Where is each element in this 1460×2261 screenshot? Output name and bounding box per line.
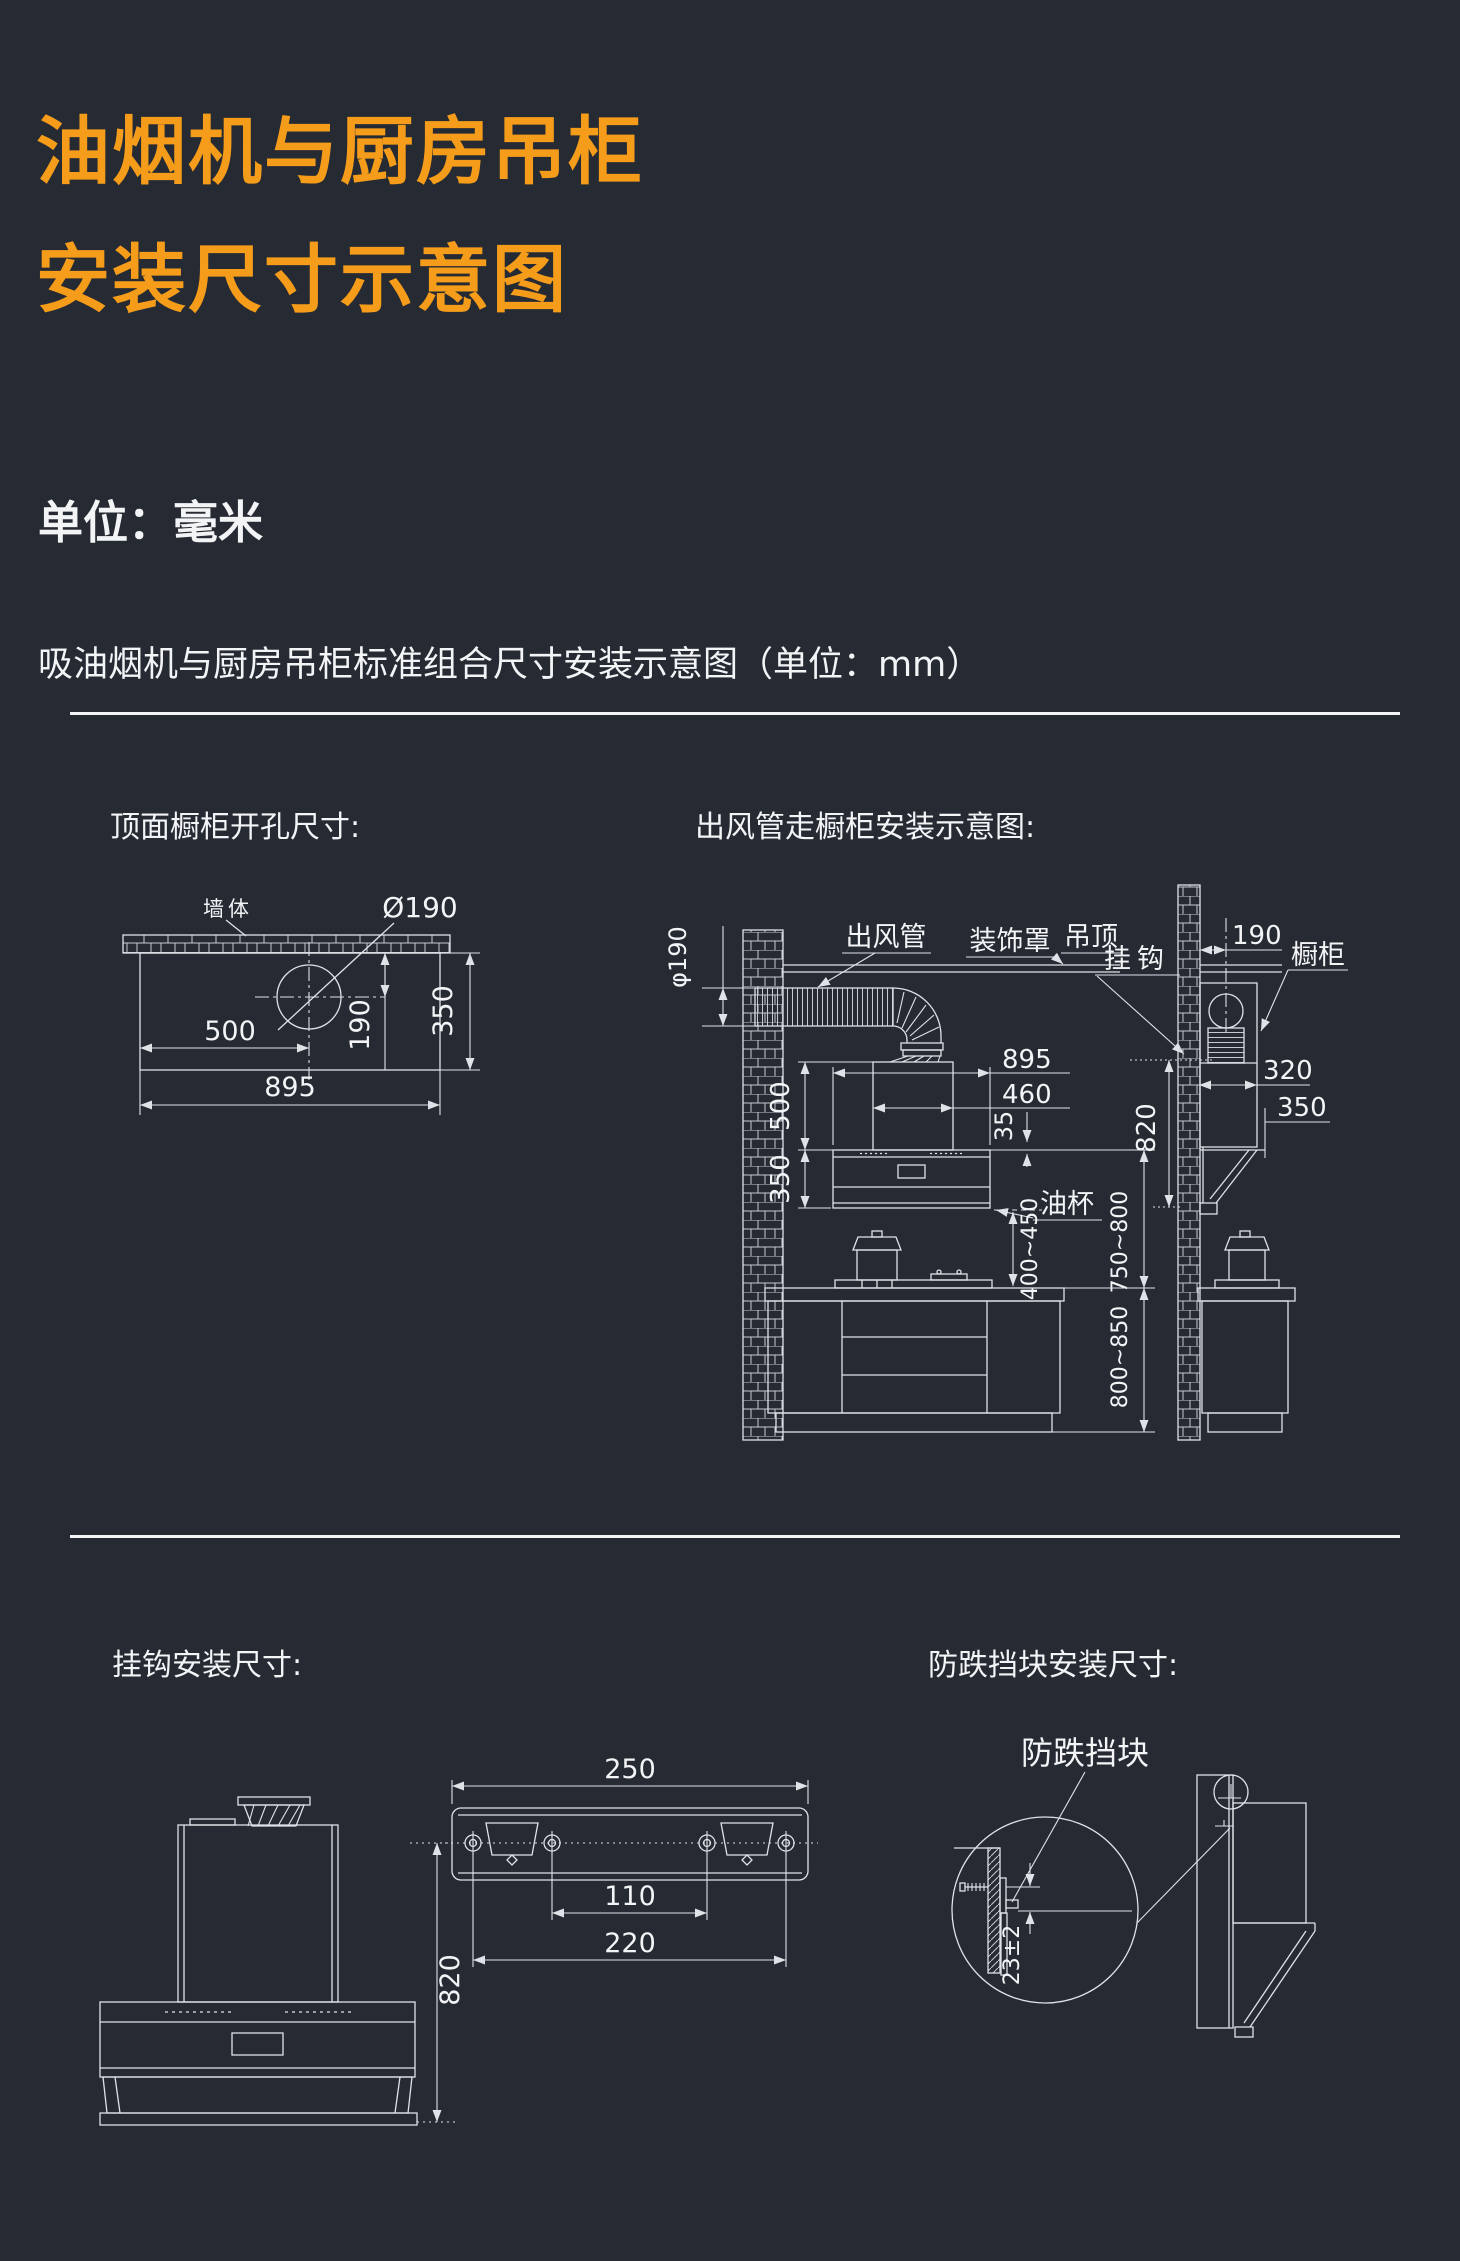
- hook-diagram: 820 250: [60, 1740, 860, 2140]
- label-duct: 出风管: [818, 922, 931, 987]
- dim-counter-height-text: 800~850: [1108, 1306, 1133, 1408]
- corrugation-side: [1208, 1028, 1244, 1063]
- label-cabinet: 橱柜: [1261, 940, 1348, 1031]
- duct-elbow: [890, 988, 943, 1062]
- cover-label-text: 装饰罩: [970, 926, 1051, 957]
- stopper-label-text: 防跌挡块: [1021, 1734, 1149, 1772]
- corrugated-duct: [755, 988, 893, 1026]
- dim-hook-side-text: 820: [1132, 1103, 1162, 1153]
- wall-label-group: 墙体: [203, 897, 253, 936]
- counter-and-cabinet: [765, 1288, 1064, 1432]
- cabinet-top-panel: [140, 942, 440, 1080]
- dim-hook-height: 820: [410, 1843, 466, 2122]
- hood-display-front: [232, 2033, 283, 2055]
- ceiling-lines: [783, 965, 1120, 972]
- ceiling-lines-right: [1200, 965, 1282, 972]
- page-title-line2: 安装尺寸示意图: [36, 220, 568, 327]
- page-title-line1: 油烟机与厨房吊柜: [36, 92, 644, 199]
- cutout-diagram: 墙体 Ø190 500 895 190: [60, 880, 540, 1130]
- label-oilcup: 油杯: [996, 1189, 1102, 1220]
- cabinet-side-box: [1233, 1803, 1306, 1923]
- hole-dia-label: Ø190: [382, 891, 457, 924]
- dim-23-text: 23±2: [1000, 1925, 1025, 1985]
- dim-wall-to-duct: 190: [1200, 918, 1282, 1035]
- dim-500: 500: [140, 1016, 309, 1048]
- dim-hood-depth-text: 350: [1277, 1093, 1327, 1123]
- dim-hoodtop-counter-text: 750~800: [1108, 1191, 1133, 1293]
- hood-display: [898, 1165, 925, 1178]
- stopper-diagram-title: 防跌挡块安装尺寸:: [928, 1640, 1178, 1684]
- counter-and-cabinet-side: [1198, 1288, 1295, 1432]
- dim-110-text: 110: [604, 1881, 656, 1912]
- detail-content: 23±2: [954, 1848, 1132, 1985]
- side-view: [1137, 1775, 1315, 2037]
- dim-895-text: 895: [264, 1072, 316, 1103]
- gas-pot-side: [1215, 1231, 1279, 1288]
- side-cabinet-box: [1200, 983, 1257, 1147]
- brick-wall-right: [1178, 885, 1200, 1440]
- dim-hood-height: 350: [766, 1150, 831, 1208]
- dim-hood-width-text: 895: [1002, 1045, 1052, 1075]
- dim-820-text: 820: [435, 1954, 466, 2006]
- cabinet-label-text: 橱柜: [1291, 940, 1345, 971]
- dim-cab-depth-text: 320: [1263, 1056, 1313, 1086]
- dim-inner-holes: 110: [552, 1853, 707, 1920]
- hook-slot-right: [721, 1823, 773, 1865]
- stopper-diagram: 防跌挡块 23±2: [900, 1730, 1360, 2140]
- dim-stopper-offset: 23±2: [1000, 1863, 1030, 1985]
- dim-350-text: 350: [428, 985, 459, 1037]
- dim-bracket-width: 250: [452, 1754, 808, 1804]
- dim-cover-width: 460: [873, 1080, 1070, 1110]
- dim-hood-to-counter: 400~450: [994, 1198, 1043, 1300]
- dim-counter-height: 800~850: [1052, 1288, 1155, 1432]
- wall-section: [988, 1848, 1000, 1973]
- hood-body: [833, 1150, 990, 1208]
- duct-label-text: 出风管: [846, 922, 927, 953]
- page: 油烟机与厨房吊柜 安装尺寸示意图 单位：毫米 吸油烟机与厨房吊柜标准组合尺寸安装…: [0, 0, 1460, 2261]
- divider-top: [70, 712, 1400, 715]
- hook-diagram-title: 挂钩安装尺寸:: [112, 1640, 302, 1684]
- hood-side-profile: [1200, 1147, 1265, 1214]
- cutout-diagram-title: 顶面橱柜开孔尺寸:: [110, 802, 360, 846]
- screw-holes: [465, 1831, 794, 1855]
- screw: [960, 1883, 988, 1891]
- gas-stove: [835, 1231, 992, 1288]
- hood-front-view: [100, 1797, 417, 2125]
- dim-cover-overlap: 35: [990, 1111, 1070, 1167]
- detail-link-line: [1137, 1828, 1230, 1923]
- dim-500-text: 500: [204, 1016, 256, 1047]
- dim-hood-depth: 350: [1265, 1093, 1330, 1158]
- dim-895: 895: [140, 1070, 440, 1115]
- dim-190: 190: [345, 953, 385, 1070]
- wall-panel: [1197, 1775, 1233, 2028]
- label-hook: 挂钩: [1095, 944, 1184, 1054]
- divider-bottom: [70, 1535, 1400, 1538]
- bracket-detail: [445, 1808, 818, 1880]
- wall-label: 墙体: [203, 897, 253, 921]
- dim-220-text: 220: [604, 1928, 656, 1959]
- dim-cover-height-text: 500: [766, 1081, 796, 1131]
- detail-circle: [952, 1817, 1138, 2003]
- oilcup-label-text: 油杯: [1040, 1189, 1094, 1220]
- dim-hook-height-side: 820: [1132, 1060, 1182, 1207]
- wall-strip: [123, 935, 450, 953]
- dim-wall-duct-text: 190: [1232, 921, 1282, 951]
- duct-diagram: φ190 出风管 装饰罩: [650, 860, 1350, 1450]
- dim-190-text: 190: [345, 999, 376, 1051]
- dim-hood-height-text: 350: [766, 1154, 796, 1204]
- dim-250-text: 250: [604, 1754, 656, 1785]
- section-header: 吸油烟机与厨房吊柜标准组合尺寸安装示意图（单位：mm）: [38, 636, 981, 687]
- dim-overlap-text: 35: [990, 1111, 1018, 1142]
- dim-hoodtop-to-counter: 750~800: [990, 1150, 1155, 1293]
- label-cover: 装饰罩: [966, 926, 1063, 964]
- dim-350: 350: [428, 953, 480, 1070]
- hood-side: [1233, 1923, 1315, 2037]
- decorative-cover: [873, 1062, 953, 1150]
- duct-diagram-title: 出风管走橱柜安装示意图:: [695, 802, 1035, 846]
- hook-slot-left: [486, 1823, 538, 1865]
- dim-hood-counter-text: 400~450: [1018, 1198, 1043, 1300]
- hook-label-text: 挂钩: [1104, 944, 1170, 975]
- dim-cover-width-text: 460: [1002, 1080, 1052, 1110]
- wall-leader: [226, 920, 246, 936]
- dim-duct-dia-text: φ190: [664, 926, 692, 988]
- unit-label: 单位：毫米: [38, 486, 263, 551]
